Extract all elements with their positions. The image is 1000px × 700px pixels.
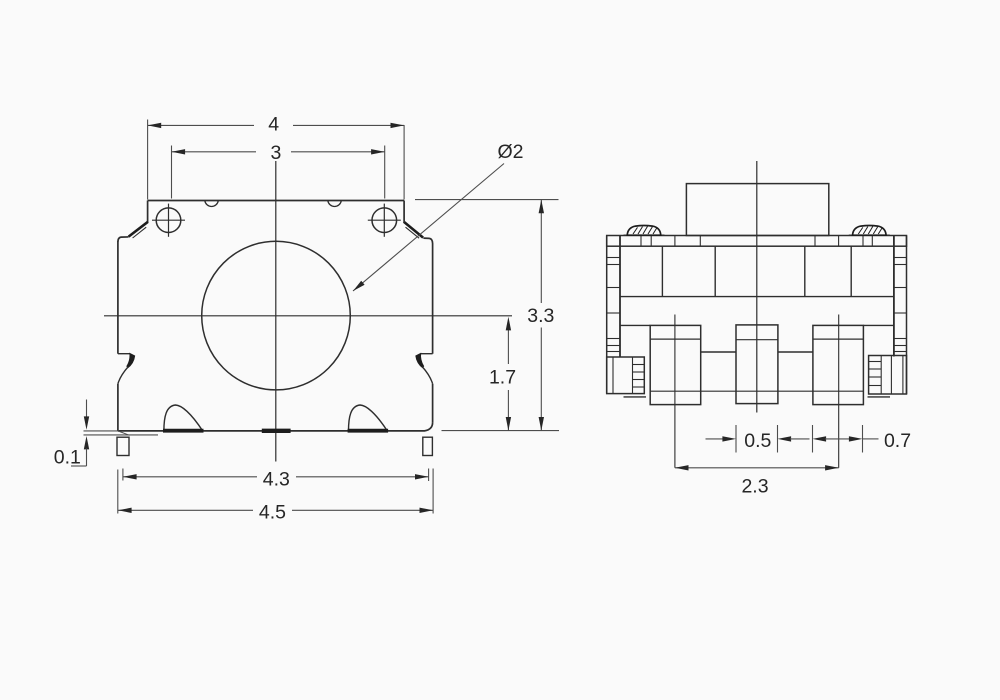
svg-text:1.7: 1.7 bbox=[489, 367, 516, 389]
svg-text:4: 4 bbox=[268, 113, 279, 135]
svg-text:Ø2: Ø2 bbox=[497, 141, 523, 163]
svg-text:3: 3 bbox=[270, 142, 281, 164]
svg-text:0.1: 0.1 bbox=[54, 447, 81, 469]
svg-text:2.3: 2.3 bbox=[741, 476, 768, 498]
svg-text:0.5: 0.5 bbox=[744, 430, 771, 452]
svg-text:0.7: 0.7 bbox=[884, 430, 911, 452]
svg-text:4.3: 4.3 bbox=[263, 468, 290, 490]
svg-text:4.5: 4.5 bbox=[259, 502, 286, 524]
svg-text:3.3: 3.3 bbox=[527, 305, 554, 327]
